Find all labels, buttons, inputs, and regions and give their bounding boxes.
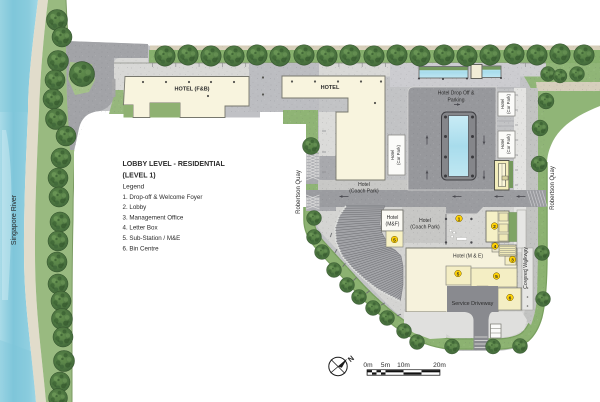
svg-text:(Car Park): (Car Park) (396, 145, 401, 165)
svg-text:Hotel: Hotel (500, 99, 505, 109)
svg-text:Singapore River: Singapore River (11, 194, 18, 245)
svg-text:Service Driveway: Service Driveway (452, 301, 494, 307)
svg-text:Hotel: Hotel (419, 218, 431, 224)
svg-text:Hotel: Hotel (358, 182, 370, 188)
svg-text:5: 5 (393, 237, 396, 243)
svg-text:5: 5 (457, 271, 460, 277)
svg-text:HOTEL: HOTEL (321, 85, 340, 91)
svg-text:1: 1 (458, 216, 461, 222)
svg-text:5: 5 (495, 274, 498, 280)
svg-text:(M&F): (M&F) (386, 222, 400, 228)
svg-text:Legend: Legend (123, 184, 145, 191)
svg-text:6. Bin Centre: 6. Bin Centre (123, 245, 160, 252)
svg-text:(Car Park): (Car Park) (506, 134, 511, 154)
svg-text:20m: 20m (433, 362, 446, 369)
svg-text:Hotel (M & E): Hotel (M & E) (453, 254, 483, 260)
svg-text:(Coach Park): (Coach Park) (349, 189, 379, 195)
svg-text:Hotel: Hotel (500, 139, 505, 149)
svg-text:Covered Walkway: Covered Walkway (523, 247, 529, 289)
svg-text:HOTEL (F&B): HOTEL (F&B) (174, 87, 209, 93)
svg-text:Robertson Quay: Robertson Quay (550, 166, 556, 210)
svg-text:1. Drop-off & Welcome Foyer: 1. Drop-off & Welcome Foyer (123, 194, 203, 201)
svg-text:10m: 10m (397, 362, 410, 369)
svg-text:Hotel: Hotel (387, 215, 399, 221)
svg-text:Hotel Drop Off &: Hotel Drop Off & (438, 91, 475, 97)
svg-text:Hotel: Hotel (390, 150, 395, 160)
svg-text:5. Sub-Station / M&E: 5. Sub-Station / M&E (123, 235, 181, 242)
svg-text:LOBBY LEVEL - RESIDENTIAL: LOBBY LEVEL - RESIDENTIAL (123, 161, 226, 168)
svg-text:4: 4 (494, 244, 497, 250)
svg-text:(Car Park): (Car Park) (506, 94, 511, 114)
svg-text:6: 6 (509, 295, 512, 301)
svg-text:5m: 5m (381, 362, 391, 369)
svg-text:2. Lobby: 2. Lobby (123, 204, 148, 211)
svg-text:3: 3 (511, 257, 514, 263)
svg-text:Robertson Quay: Robertson Quay (296, 170, 302, 214)
svg-text:(Coach Park): (Coach Park) (410, 225, 440, 231)
svg-text:2: 2 (493, 224, 496, 230)
svg-text:Parking: Parking (448, 97, 465, 103)
svg-text:(LEVEL 1): (LEVEL 1) (123, 173, 156, 180)
svg-text:3. Management Office: 3. Management Office (123, 214, 184, 221)
svg-text:4. Letter Box: 4. Letter Box (123, 225, 159, 232)
svg-text:0m: 0m (363, 362, 373, 369)
